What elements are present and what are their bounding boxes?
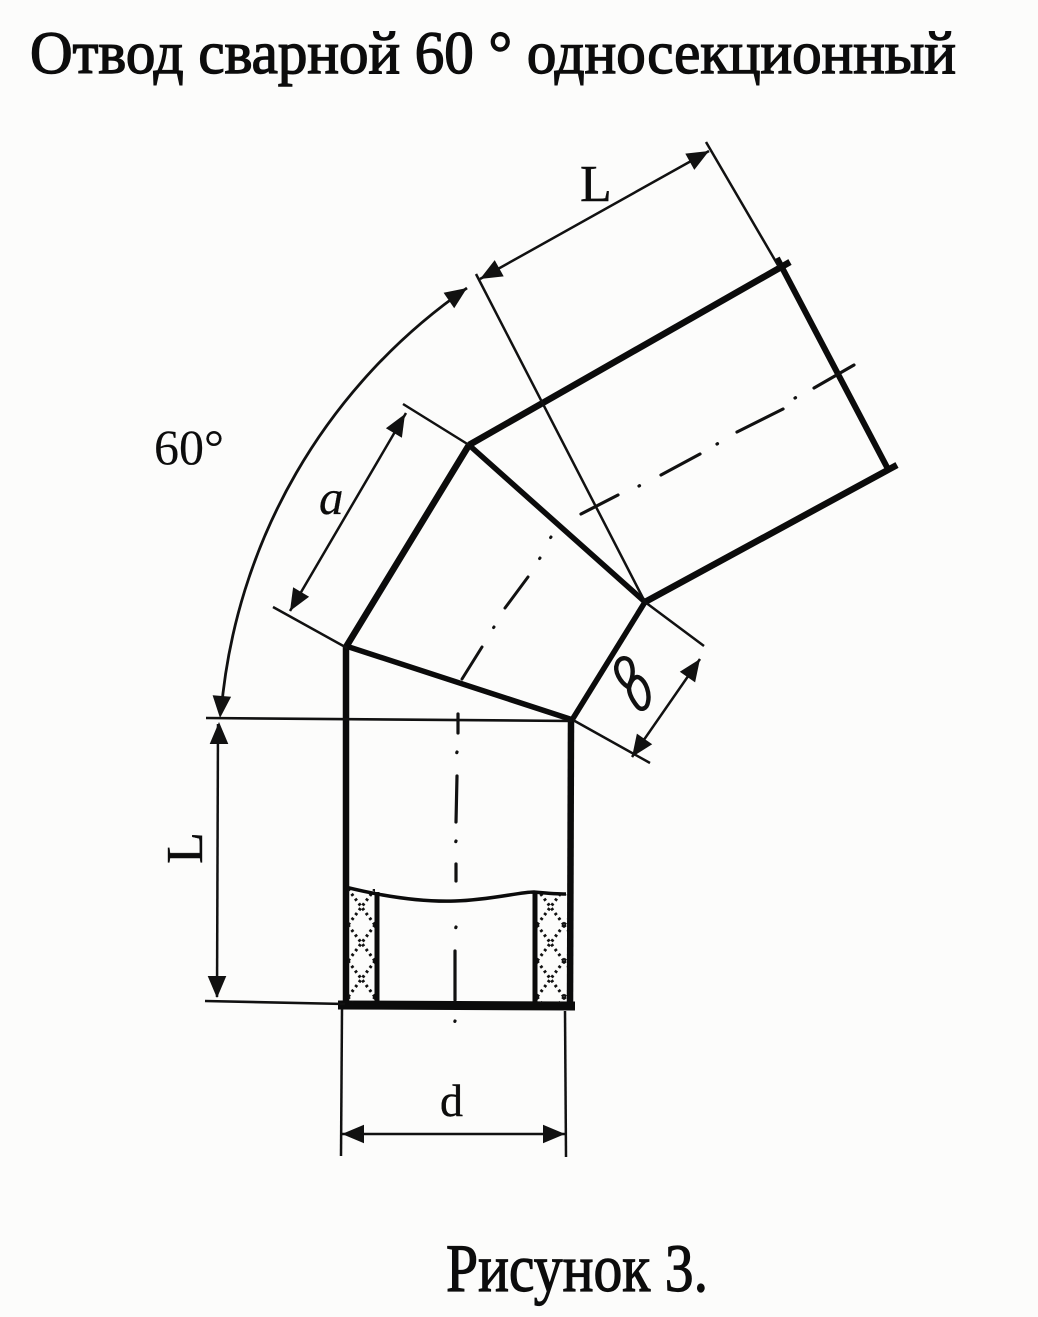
svg-text:Отвод сварной 60 ° односекцион: Отвод сварной 60 ° односекционный <box>30 20 956 86</box>
svg-text:d: d <box>440 1075 463 1126</box>
svg-text:60°: 60° <box>154 419 224 475</box>
svg-text:Рисунок 3.: Рисунок 3. <box>446 1230 708 1306</box>
svg-text:a: a <box>319 470 344 525</box>
svg-text:L: L <box>157 832 214 864</box>
svg-text:L: L <box>580 156 612 213</box>
